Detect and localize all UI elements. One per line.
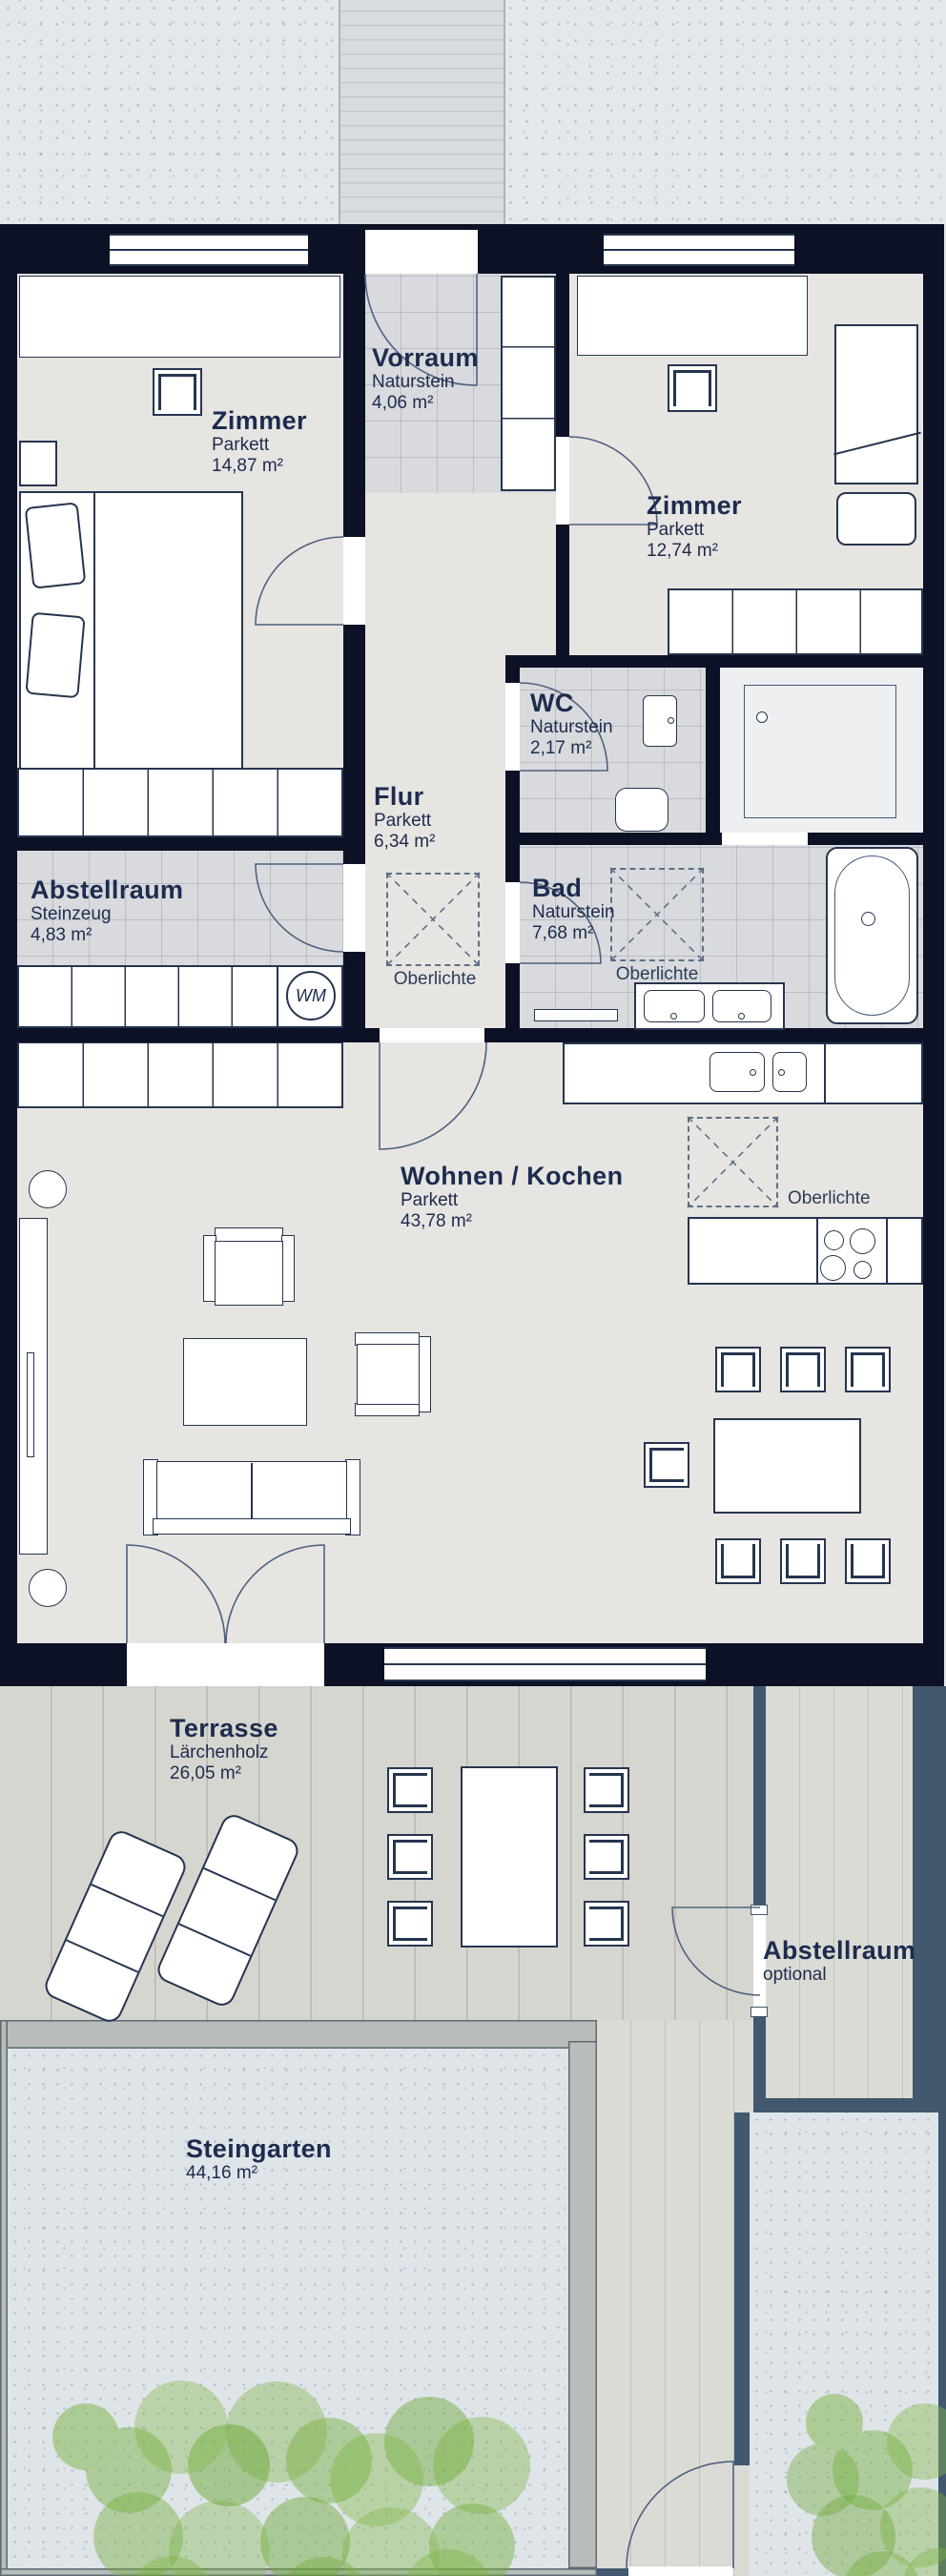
gate-wall-bottom bbox=[597, 2568, 628, 2576]
room-floor: Naturstein bbox=[532, 902, 615, 922]
nightstand bbox=[19, 441, 57, 486]
bathtub-basin bbox=[834, 855, 910, 1016]
island-divider bbox=[886, 1219, 888, 1283]
door-opening-wc bbox=[505, 683, 520, 771]
optional-storage-wall-left bbox=[753, 1686, 766, 2112]
room-name: Terrasse bbox=[170, 1714, 278, 1742]
room-name: Abstellraum bbox=[31, 876, 183, 904]
garden-path bbox=[597, 2020, 753, 2576]
chair-zimmer-2 bbox=[668, 364, 717, 412]
label-bad: Bad Naturstein 7,68 m² bbox=[532, 874, 615, 943]
wall-wc-top bbox=[505, 655, 923, 668]
wc-toilet bbox=[615, 788, 668, 832]
room-area: 12,74 m² bbox=[647, 541, 742, 561]
island-divider bbox=[816, 1219, 818, 1283]
room-area: 7,68 m² bbox=[532, 923, 615, 943]
washing-machine: WM bbox=[286, 971, 336, 1020]
room-floor: Lärchenholz bbox=[170, 1742, 278, 1762]
bed-fold-line bbox=[833, 432, 921, 456]
room-name: Zimmer bbox=[647, 491, 742, 520]
bed-single bbox=[834, 324, 918, 484]
faucet-dot bbox=[738, 1013, 745, 1020]
room-floor: Naturstein bbox=[372, 372, 479, 392]
room-floor: optional bbox=[763, 1965, 915, 1985]
bathtub bbox=[826, 847, 918, 1024]
wall-zimmer1-abstellraum bbox=[17, 837, 343, 851]
terrace-chair bbox=[387, 1834, 433, 1880]
room-name: Steingarten bbox=[186, 2134, 332, 2163]
garden-wall-right-edge bbox=[938, 2112, 946, 2576]
shower-drain bbox=[756, 711, 768, 723]
wall-bad-top bbox=[505, 833, 923, 845]
room-area: 26,05 m² bbox=[170, 1763, 278, 1783]
door-opening-zimmer-1 bbox=[343, 537, 365, 625]
gate-opening bbox=[628, 2566, 733, 2576]
wardrobe-zimmer-2 bbox=[577, 276, 808, 356]
label-wc: WC Naturstein 2,17 m² bbox=[530, 689, 613, 758]
sofa bbox=[143, 1457, 360, 1541]
stone-garden-ground bbox=[8, 2049, 568, 2568]
room-name: Bad bbox=[532, 874, 615, 902]
dining-chair bbox=[845, 1347, 891, 1392]
french-door-opening bbox=[127, 1643, 324, 1686]
wall-right bbox=[923, 224, 944, 1686]
shelf-row-abstellraum bbox=[17, 965, 284, 1028]
room-area: 4,06 m² bbox=[372, 393, 479, 413]
towel-rail bbox=[534, 1009, 618, 1021]
plant-circle bbox=[29, 1170, 67, 1208]
terrace-table bbox=[461, 1766, 558, 1947]
right-garden-ground bbox=[750, 2112, 946, 2576]
terrace-chair bbox=[584, 1901, 629, 1947]
label-zimmer-2: Zimmer Parkett 12,74 m² bbox=[647, 491, 742, 561]
room-name: Vorraum bbox=[372, 343, 479, 372]
sideboard bbox=[19, 1218, 48, 1555]
window-zimmer-1 bbox=[110, 234, 308, 266]
skylight-bad bbox=[610, 868, 704, 961]
optional-storage-floor bbox=[766, 1686, 913, 2098]
room-area: 43,78 m² bbox=[401, 1211, 624, 1231]
wall-left bbox=[0, 224, 17, 1686]
stone-garden-frame-top bbox=[0, 2020, 597, 2049]
room-area: 4,83 m² bbox=[31, 925, 183, 945]
faucet-dot bbox=[670, 1013, 677, 1020]
cooktop-burner bbox=[820, 1255, 846, 1281]
label-terrasse: Terrasse Lärchenholz 26,05 m² bbox=[170, 1714, 278, 1783]
dining-chair bbox=[715, 1538, 761, 1584]
dining-chair bbox=[780, 1538, 826, 1584]
label-oberlichte-bad: Oberlichte bbox=[603, 964, 711, 985]
door-opening-abstellraum bbox=[343, 864, 365, 952]
pillow bbox=[25, 502, 87, 588]
entrance-opening bbox=[365, 230, 478, 274]
label-steingarten: Steingarten 44,16 m² bbox=[186, 2134, 332, 2184]
bed-double bbox=[19, 491, 243, 770]
vanity-double bbox=[634, 982, 785, 1030]
dining-chair bbox=[644, 1442, 689, 1488]
room-floor: Parkett bbox=[374, 811, 435, 831]
room-name: Wohnen / Kochen bbox=[401, 1162, 624, 1190]
stone-garden-frame-left bbox=[0, 2020, 8, 2576]
faucet-dot bbox=[778, 1069, 785, 1076]
room-area: 6,34 m² bbox=[374, 832, 435, 852]
optional-storage-wall-bottom bbox=[753, 2098, 923, 2112]
dining-chair bbox=[715, 1347, 761, 1392]
door-opening-zimmer-2 bbox=[556, 437, 569, 525]
faucet-dot bbox=[750, 1069, 756, 1076]
stone-garden-frame-bottom bbox=[0, 2568, 597, 2576]
kitchen-sink bbox=[709, 1052, 765, 1092]
skylight-flur bbox=[386, 873, 480, 966]
skylight-kitchen bbox=[688, 1117, 778, 1207]
cooktop-burner bbox=[824, 1230, 844, 1250]
terrace-chair bbox=[584, 1767, 629, 1813]
label-oberlichte-flur: Oberlichte bbox=[381, 969, 488, 990]
terrace-chair bbox=[584, 1834, 629, 1880]
room-name: WC bbox=[530, 689, 613, 717]
boundary-wall-right bbox=[913, 1686, 946, 2112]
bush-cluster-right bbox=[806, 2394, 863, 2451]
dining-chair bbox=[780, 1347, 826, 1392]
room-floor: Steinzeug bbox=[31, 904, 183, 924]
room-floor: Parkett bbox=[212, 435, 307, 455]
armchair bbox=[203, 1227, 295, 1308]
room-floor: Parkett bbox=[647, 520, 742, 540]
plant-circle bbox=[29, 1569, 67, 1607]
bathtub-drain bbox=[861, 912, 875, 926]
entrance-walkway bbox=[339, 0, 505, 225]
rug bbox=[183, 1338, 307, 1426]
bush-cluster-left bbox=[52, 2403, 119, 2470]
room-floor: Parkett bbox=[401, 1190, 624, 1210]
room-floor: Naturstein bbox=[530, 717, 613, 737]
room-name: Abstellraum bbox=[763, 1936, 915, 1965]
room-area: 44,16 m² bbox=[186, 2163, 332, 2183]
closet-column-vorraum bbox=[501, 276, 556, 491]
door-jamb bbox=[751, 1905, 768, 1915]
door-jamb bbox=[751, 2007, 768, 2017]
label-wohnen-kochen: Wohnen / Kochen Parkett 43,78 m² bbox=[401, 1162, 624, 1231]
shower-entry-opening bbox=[722, 833, 808, 845]
room-name: Zimmer bbox=[212, 406, 307, 435]
closet-row-zimmer-2 bbox=[668, 588, 923, 655]
bed-fold-line bbox=[93, 493, 95, 768]
window-niche-zimmer-1 bbox=[19, 276, 340, 358]
label-oberlichte-kitchen: Oberlichte bbox=[788, 1188, 871, 1209]
wardrobe-row-zimmer-1 bbox=[17, 768, 343, 837]
kitchen-counter bbox=[563, 1042, 923, 1104]
garden-wall-middle bbox=[734, 2112, 750, 2465]
door-opening-bad bbox=[505, 882, 520, 963]
label-abstellraum: Abstellraum Steinzeug 4,83 m² bbox=[31, 876, 183, 945]
window-zimmer-2 bbox=[604, 234, 794, 266]
washing-machine-label: WM bbox=[288, 973, 334, 1019]
door-opening-flur-living bbox=[380, 1028, 484, 1042]
label-vorraum: Vorraum Naturstein 4,06 m² bbox=[372, 343, 479, 413]
chair-zimmer-1 bbox=[153, 368, 202, 416]
terrace-chair bbox=[387, 1767, 433, 1813]
floor-plan: WM bbox=[0, 0, 946, 2576]
dining-table bbox=[713, 1418, 861, 1514]
cooktop-burner bbox=[853, 1261, 872, 1279]
label-flur: Flur Parkett 6,34 m² bbox=[374, 782, 435, 852]
stone-garden-frame-right bbox=[568, 2041, 597, 2568]
dining-chair bbox=[845, 1538, 891, 1584]
counter-divider bbox=[824, 1044, 826, 1103]
terrace-chair bbox=[387, 1901, 433, 1947]
window-living-south bbox=[384, 1647, 706, 1681]
faucet-dot bbox=[668, 717, 674, 724]
pillow bbox=[836, 492, 916, 546]
pillow bbox=[25, 612, 85, 699]
armchair bbox=[351, 1332, 431, 1416]
room-name: Flur bbox=[374, 782, 435, 811]
closet-row-living bbox=[17, 1041, 343, 1108]
shower-tray bbox=[744, 685, 896, 818]
label-zimmer-1: Zimmer Parkett 14,87 m² bbox=[212, 406, 307, 476]
kitchen-island bbox=[688, 1217, 923, 1285]
cooktop-burner bbox=[850, 1228, 875, 1254]
label-abstellraum-optional: Abstellraum optional bbox=[763, 1936, 915, 1986]
room-area: 2,17 m² bbox=[530, 738, 613, 758]
wall-wc-right bbox=[706, 668, 720, 833]
room-area: 14,87 m² bbox=[212, 456, 307, 476]
